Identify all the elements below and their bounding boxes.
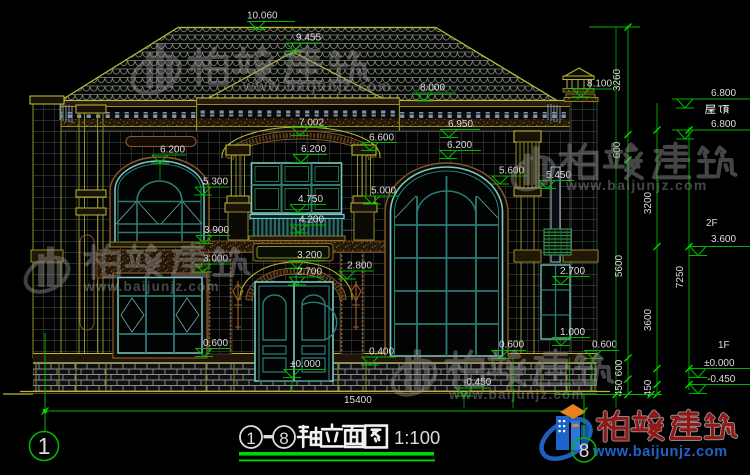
svg-text:0.600: 0.600 — [592, 340, 617, 351]
svg-text:1: 1 — [38, 433, 51, 459]
svg-text:600: 600 — [614, 359, 625, 376]
svg-text:6.600: 6.600 — [369, 133, 394, 144]
svg-text:±0.000: ±0.000 — [290, 359, 321, 370]
svg-text:www.baijunjz.com: www.baijunjz.com — [592, 444, 728, 460]
svg-text:4.750: 4.750 — [298, 194, 323, 205]
svg-text:6.800: 6.800 — [711, 88, 736, 99]
svg-text:2F: 2F — [706, 218, 718, 229]
svg-text:1.000: 1.000 — [560, 327, 585, 338]
svg-text:6.200: 6.200 — [160, 145, 185, 156]
svg-text:2.700: 2.700 — [560, 266, 585, 277]
svg-text:450: 450 — [614, 379, 625, 396]
svg-text:6.200: 6.200 — [447, 140, 472, 151]
svg-text:1: 1 — [246, 429, 255, 448]
svg-text:6.200: 6.200 — [301, 144, 326, 155]
svg-text:8: 8 — [279, 429, 288, 448]
svg-text:0.600: 0.600 — [203, 338, 228, 349]
svg-text:0.600: 0.600 — [499, 340, 524, 351]
svg-text:5.000: 5.000 — [371, 186, 396, 197]
svg-text:4.200: 4.200 — [299, 215, 324, 226]
svg-text:-0.450: -0.450 — [707, 374, 736, 385]
svg-text:www.baijunjz.com: www.baijunjz.com — [448, 387, 585, 402]
svg-text:6.800: 6.800 — [711, 119, 736, 130]
svg-text:www.baijunjz.com: www.baijunjz.com — [565, 177, 708, 193]
svg-text:8.000: 8.000 — [420, 83, 445, 94]
svg-text:1F: 1F — [718, 340, 730, 351]
svg-text:7.002: 7.002 — [299, 118, 324, 129]
svg-text:8: 8 — [579, 441, 590, 462]
svg-text:3.900: 3.900 — [204, 225, 229, 236]
svg-text:3.200: 3.200 — [297, 250, 322, 261]
svg-text:5.300: 5.300 — [203, 177, 228, 188]
svg-text:5600: 5600 — [614, 254, 625, 277]
svg-text:0.400: 0.400 — [369, 347, 394, 358]
svg-text:9.455: 9.455 — [296, 33, 321, 44]
svg-text:6.950: 6.950 — [448, 119, 473, 130]
svg-text:3200: 3200 — [643, 191, 654, 214]
svg-text:1:100: 1:100 — [394, 427, 440, 448]
svg-text:2.800: 2.800 — [347, 261, 372, 272]
svg-text:2.700: 2.700 — [297, 267, 322, 278]
svg-text:www.baijunjz.com: www.baijunjz.com — [242, 79, 392, 95]
svg-text:8.100: 8.100 — [587, 79, 612, 90]
svg-text:www.baijunjz.com: www.baijunjz.com — [83, 279, 220, 294]
svg-text:±0.000: ±0.000 — [704, 358, 735, 369]
svg-text:3.600: 3.600 — [711, 234, 736, 245]
svg-text:3260: 3260 — [612, 68, 623, 91]
svg-text:3600: 3600 — [643, 308, 654, 331]
svg-text:15400: 15400 — [344, 395, 372, 406]
svg-text:7250: 7250 — [675, 265, 686, 288]
svg-text:10.060: 10.060 — [247, 11, 278, 22]
